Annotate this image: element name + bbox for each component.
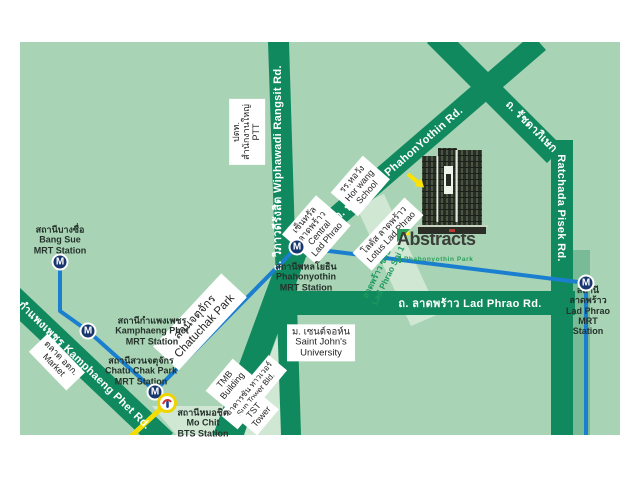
mrt-station-icon-kamphaeng-phet: M bbox=[80, 323, 97, 340]
logo-letter-a: A bbox=[397, 229, 410, 249]
station-label-kamphaeng-phet: สถานีกำแพงเพชร Kamphaeng Phet MRT Statio… bbox=[115, 315, 189, 346]
project-logo-title: Abstracts bbox=[397, 230, 527, 248]
location-map-page: ถ. วิภาวดีรังสิต Wiphawadi Rangsit Rd. ถ… bbox=[0, 0, 640, 480]
logo-title-rest: bstracts bbox=[410, 229, 476, 249]
station-label-mo-chit: สถานีหมอชิต Mo Chit BTS Station bbox=[177, 407, 228, 438]
mrt-station-icon-bang-sue: M bbox=[52, 254, 69, 271]
road-label-wiphawadi: ถ. วิภาวดีรังสิต Wiphawadi Rangsit Rd. bbox=[268, 65, 286, 271]
place-label-ptt: ปตท. สำนักงานใหญ่ PTT bbox=[229, 99, 265, 165]
mrt-station-icon-phahonyothin: M bbox=[289, 239, 306, 256]
station-label-chatu-chak-park: สถานีสวนจตุจักร Chatu Chak Park MRT Stat… bbox=[105, 355, 177, 386]
road-label-lad-phrao: ถ. ลาดพร้าว Lad Phrao Rd. bbox=[398, 294, 541, 312]
project-logo-subtitle: Phahonyothin Park bbox=[399, 256, 473, 263]
project-logo: Abstracts Phahonyothin Park bbox=[397, 230, 527, 266]
place-label-saint-johns-university: ม. เซนต์จอห์น Saint John's University bbox=[287, 324, 355, 361]
station-label-bang-sue: สถานีบางซื่อ Bang Sue MRT Station bbox=[34, 224, 87, 255]
road-label-ratchada-english: Ratchada Pisek Rd. bbox=[555, 154, 567, 262]
building-illustration bbox=[416, 148, 488, 234]
station-label-phahonyothin: สถานีพหลโยธิน Phahonyothin MRT Station bbox=[275, 261, 336, 292]
mrt-station-icon-lad-phrao: M bbox=[578, 275, 595, 292]
station-label-lad-phrao: สถานีลาดพร้าว Lad Phrao MRT Station bbox=[562, 285, 614, 337]
bts-logo-icon bbox=[161, 397, 173, 409]
bts-station-icon-mo-chit bbox=[157, 393, 177, 413]
